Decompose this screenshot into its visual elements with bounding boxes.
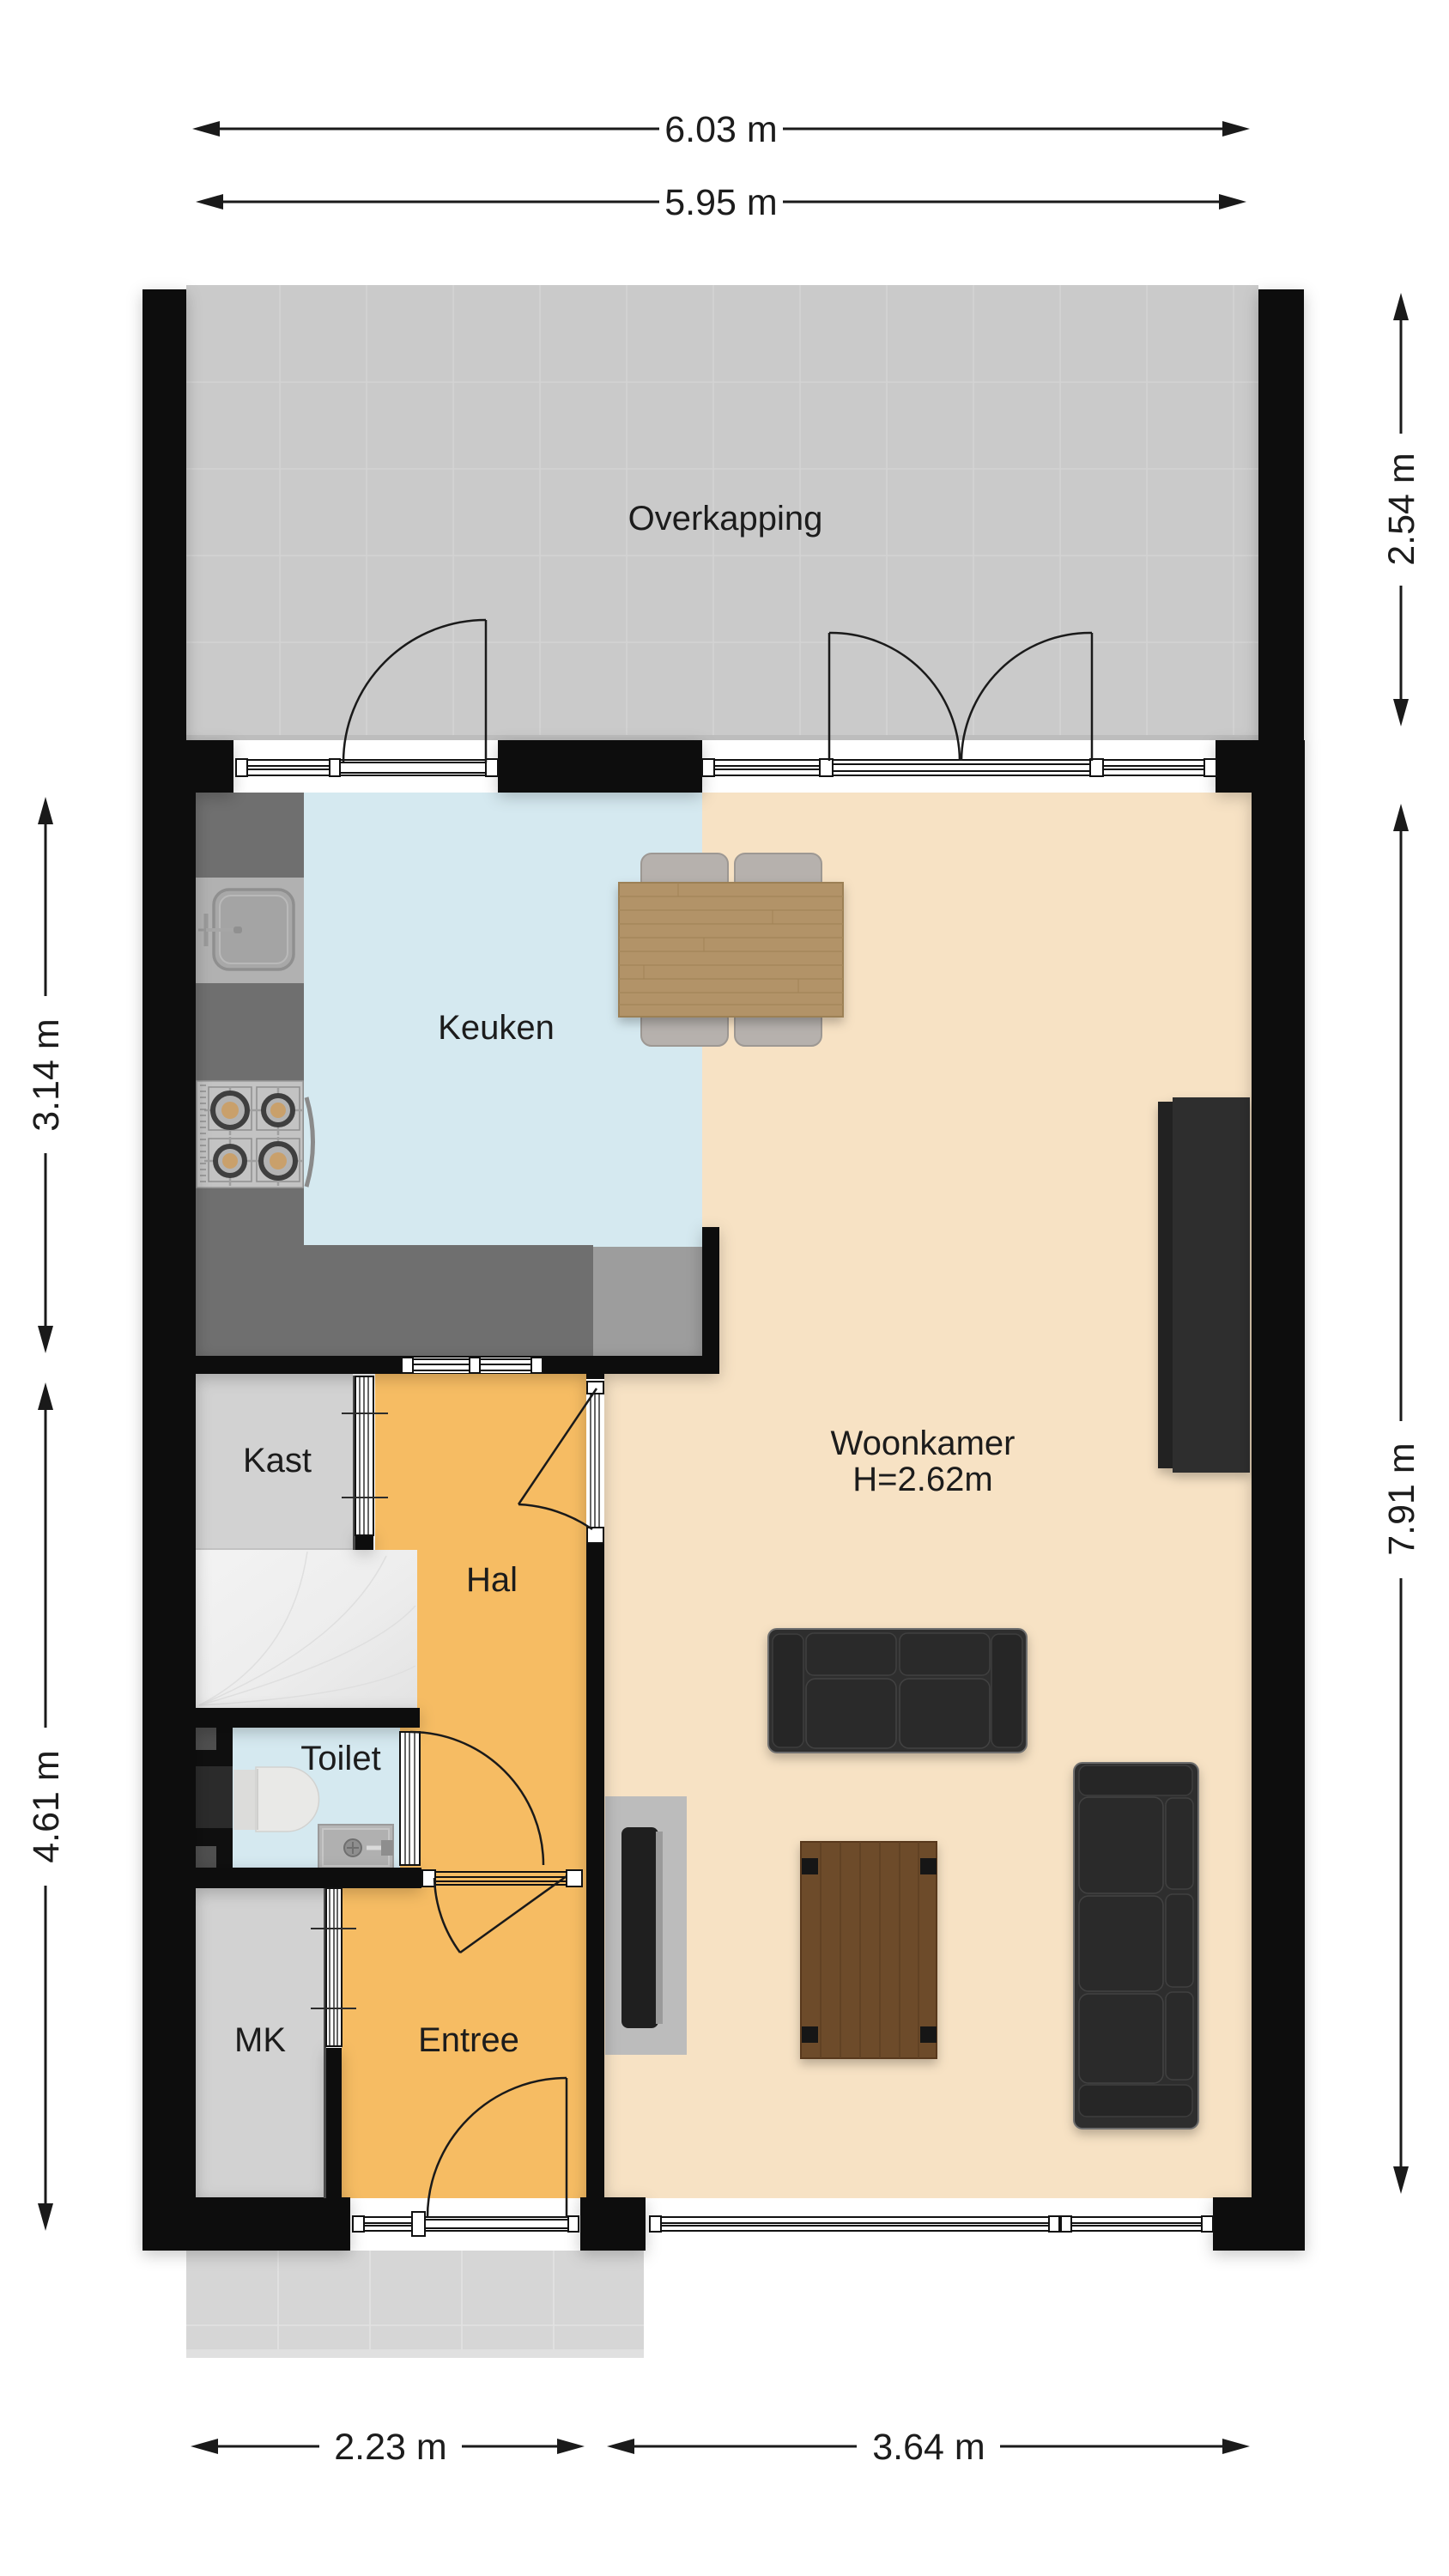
svg-text:Woonkamer: Woonkamer: [831, 1425, 1016, 1462]
svg-text:3.64 m: 3.64 m: [872, 2427, 985, 2468]
svg-text:2.54 m: 2.54 m: [1381, 453, 1422, 565]
svg-text:Overkapping: Overkapping: [628, 500, 823, 538]
svg-text:7.91 m: 7.91 m: [1381, 1443, 1422, 1555]
svg-text:Kast: Kast: [243, 1442, 312, 1479]
svg-text:H=2.62m: H=2.62m: [852, 1461, 992, 1498]
svg-text:4.61 m: 4.61 m: [26, 1750, 67, 1862]
svg-text:2.23 m: 2.23 m: [334, 2427, 446, 2468]
svg-text:3.14 m: 3.14 m: [26, 1018, 67, 1131]
svg-text:Entree: Entree: [418, 2021, 519, 2059]
svg-text:Keuken: Keuken: [438, 1009, 555, 1047]
svg-text:Toilet: Toilet: [300, 1740, 380, 1777]
svg-text:MK: MK: [234, 2021, 286, 2059]
svg-text:Hal: Hal: [466, 1561, 518, 1599]
svg-text:6.03 m: 6.03 m: [664, 109, 777, 150]
svg-text:5.95 m: 5.95 m: [664, 182, 777, 223]
